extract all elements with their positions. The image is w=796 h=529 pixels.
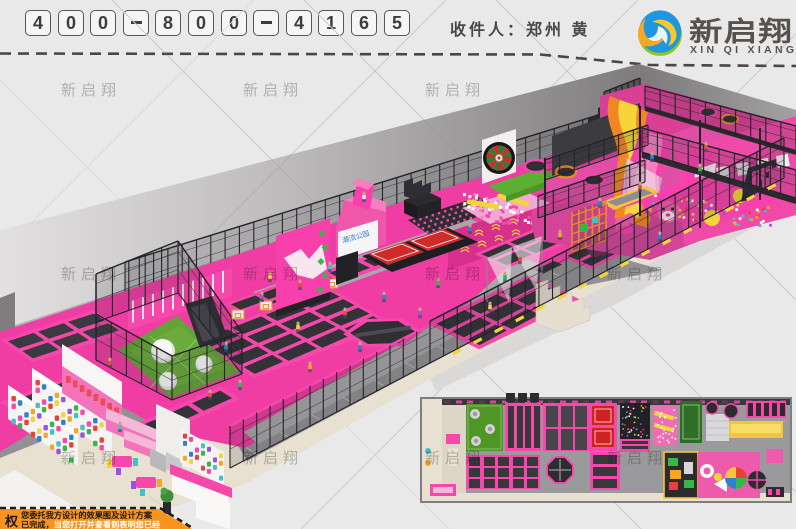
svg-text:您委托我方设计的效果图及设计方案: 您委托我方设计的效果图及设计方案 <box>21 510 153 520</box>
svg-text:新启翔: 新启翔 <box>689 17 793 47</box>
svg-text:权: 权 <box>4 514 19 529</box>
svg-text:已完成，当您打开并查看则表明您已经: 已完成，当您打开并查看则表明您已经 <box>21 520 161 529</box>
svg-text:XIN QI XIANG: XIN QI XIANG <box>690 44 794 56</box>
